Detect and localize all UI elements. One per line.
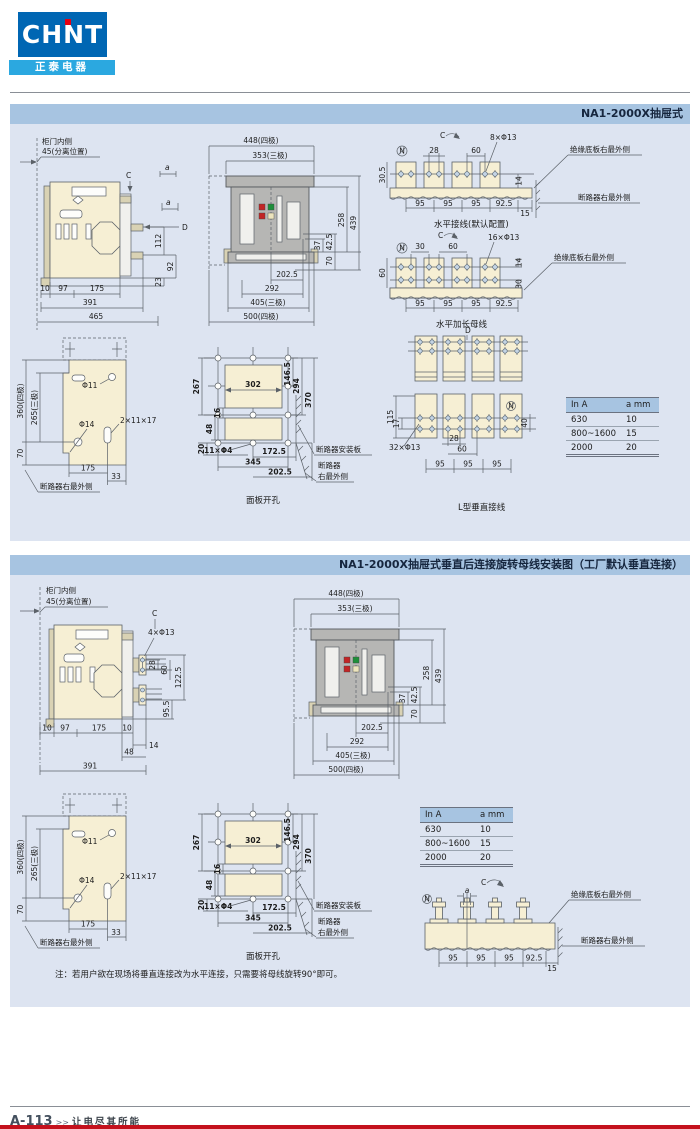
drawing-shape	[311, 629, 399, 640]
drawing-shape	[399, 265, 404, 270]
dim-label: 10	[40, 284, 50, 293]
drawing-shape	[215, 383, 221, 389]
drawing-shape	[225, 418, 282, 440]
drawing-shape	[128, 186, 133, 192]
drawing-shape	[76, 667, 81, 682]
dim-label: C	[481, 878, 486, 887]
drawing-shape	[487, 427, 491, 431]
drawing-shape	[427, 172, 432, 177]
drawing-shape	[344, 666, 350, 672]
drawing-shape	[141, 658, 145, 662]
dim-label: Φ14	[79, 876, 95, 885]
drawing-shape	[458, 416, 462, 420]
panel-na1-2000x-drawer: NA1-2000X抽屉式 柜门内侧 45(分离位置) a C a	[10, 104, 690, 541]
dim-label: 45(分离位置)	[42, 146, 87, 156]
callout-breaker-edge: 断路器右最外侧	[40, 937, 93, 947]
drawing-shape	[418, 416, 422, 420]
spec-cell: 630	[566, 413, 621, 427]
drawing-shape	[285, 896, 291, 902]
drawing-shape	[465, 265, 470, 270]
dim-label: 391	[83, 762, 98, 771]
dim-label: a	[166, 198, 171, 207]
dim-label: 28	[449, 434, 459, 443]
dim-label: a	[165, 163, 170, 172]
dim-label: 265(三极)	[29, 390, 39, 425]
drawing-shape	[558, 927, 563, 965]
dim-label: 95	[415, 199, 425, 208]
drawing-shape	[250, 868, 256, 874]
spec-row: 800~160015	[566, 427, 659, 441]
drawing-shape	[430, 416, 434, 420]
dim-label: 258	[422, 666, 431, 681]
dim-label: 202.5	[361, 723, 383, 732]
drawing-shape	[268, 213, 274, 219]
drawing-shape	[483, 278, 488, 283]
drawing-shape	[41, 278, 120, 298]
dim-label: 146.5	[283, 818, 292, 842]
dim-label: 60	[471, 146, 481, 155]
spec-cell: 15	[621, 427, 659, 441]
dim-label: Φ11	[82, 381, 98, 390]
drawing-shape	[437, 265, 442, 270]
drawing-shape	[294, 629, 311, 723]
drawing-shape	[131, 252, 143, 259]
dim-label: 302	[245, 380, 261, 389]
dim-label: 258	[337, 213, 346, 228]
dim-label: 265(三极)	[29, 846, 39, 881]
dim-label: 15	[547, 964, 557, 973]
spec-cell: 20	[475, 851, 513, 866]
drawing-shape	[131, 224, 143, 231]
callout-insulation-edge: 绝缘底板右最外侧	[570, 144, 630, 154]
drawing-shape	[209, 176, 226, 270]
dim-label: 294	[292, 378, 301, 394]
spec-row: 800~160015	[420, 837, 513, 851]
dim-label: 95	[415, 299, 425, 308]
spec-cell: 20	[621, 441, 659, 456]
drawing-shape	[446, 427, 450, 431]
drawing-shape	[446, 340, 450, 344]
caption-panel-cutout: 面板开孔	[246, 495, 281, 506]
drawing-shape	[437, 278, 442, 283]
drawing-shape	[503, 349, 507, 353]
dim-label: 28	[148, 660, 157, 670]
dim-label: 95	[504, 954, 514, 963]
dim-label: 353(三极)	[252, 150, 287, 160]
drawing-shape	[109, 374, 116, 381]
dim-label: 17	[392, 419, 401, 429]
drawing-shape	[515, 416, 519, 420]
drawing-shape	[296, 899, 309, 935]
drawing-shape	[145, 638, 155, 656]
dim-label: 60	[448, 242, 458, 251]
spec-row: 200020	[420, 851, 513, 866]
dim-label: 405(三极)	[335, 750, 370, 760]
drawing-shape	[514, 919, 532, 923]
dim-label: 202.5	[276, 270, 298, 279]
dim-label: 16×Φ13	[488, 233, 520, 242]
callout-breaker-edge: 断路器右最外侧	[581, 935, 634, 945]
footer-red-bar	[0, 1125, 700, 1129]
drawing-shape	[492, 907, 499, 919]
callout-breaker-edge: 右最外侧	[318, 471, 348, 481]
callout-breaker-edge: 右最外侧	[318, 927, 348, 937]
drawing-shape	[406, 200, 532, 212]
dim-label: 48	[205, 880, 214, 890]
drawing-shape	[455, 278, 460, 283]
drawing-shape	[393, 396, 415, 438]
brand-name: 正泰电器	[9, 60, 115, 75]
drawing-shape	[65, 342, 122, 357]
drawing-shape	[226, 176, 314, 187]
dim-label: 37	[313, 241, 322, 251]
drawing-shape	[487, 416, 491, 420]
dim-label: 23	[154, 277, 163, 287]
caption-panel-cutout: 面板开孔	[246, 951, 281, 962]
drawing-shape	[287, 202, 300, 239]
drawing-shape	[409, 278, 414, 283]
dim-label: 30	[415, 242, 425, 251]
drawing-shape	[480, 258, 500, 288]
drawing-shape	[475, 340, 479, 344]
drawing-shape	[458, 427, 462, 431]
dim-label: 360(四极)	[15, 383, 25, 418]
dim-label: 353(三极)	[337, 603, 372, 613]
drawing-shape	[503, 416, 507, 420]
drawing-shape	[31, 160, 37, 165]
drawing-shape	[424, 258, 444, 288]
drawing-shape	[215, 839, 221, 845]
panel1-title: NA1-2000X抽屉式	[10, 104, 690, 124]
dim-label: 37	[398, 694, 407, 704]
drawing-shape	[489, 902, 502, 907]
dim-label: C	[152, 609, 157, 618]
drawing-mounting-plate-1: Φ11 Φ14 2×11×17 360(四极) 70 265(三极) 175 3…	[12, 333, 192, 503]
dim-label: 292	[350, 737, 365, 746]
drawing-shape	[446, 349, 450, 353]
panel-na1-2000x-vertical: NA1-2000X抽屉式垂直后连接旋转母线安装图（工厂默认垂直连接） 柜门内侧 …	[10, 555, 690, 1007]
drawing-shape	[399, 172, 404, 177]
drawing-shape	[133, 688, 139, 702]
drawing-shape	[443, 394, 465, 438]
drawing-shape	[515, 349, 519, 353]
drawing-shape	[418, 340, 422, 344]
dim-label: 42.5	[410, 686, 419, 703]
drawing-shape	[250, 412, 256, 418]
dim-label: 405(三极)	[250, 297, 285, 307]
spec-row: 200020	[566, 441, 659, 456]
drawing-side-view-1: 柜门内侧 45(分离位置) a C a D 112	[12, 132, 197, 337]
dim-label: 370	[304, 392, 313, 408]
callout-breaker-edge: 断路器	[318, 460, 341, 470]
drawing-shape	[427, 278, 432, 283]
drawing-shape	[493, 898, 498, 902]
drawing-shape	[225, 874, 282, 896]
drawing-shape	[56, 224, 61, 239]
dim-label: 95	[476, 954, 486, 963]
drawing-shape	[122, 631, 133, 717]
spec-row: 63010	[420, 823, 513, 837]
drawing-shape	[86, 224, 91, 239]
drawing-shape	[465, 172, 470, 177]
spec-cell: 630	[420, 823, 475, 837]
dim-label: 175	[81, 464, 96, 473]
dim-label: 4×Φ13	[148, 628, 175, 637]
drawing-shape	[120, 194, 131, 276]
dim-label: 柜门内侧	[42, 136, 72, 146]
drawing-shape	[311, 614, 399, 627]
dim-label: 70	[16, 905, 25, 915]
dim-label: 42.5	[325, 233, 334, 250]
drawing-shape	[64, 224, 69, 239]
drawing-shape	[344, 657, 350, 663]
drawing-shape	[141, 668, 145, 672]
drawing-shape	[458, 349, 462, 353]
drawing-shape	[497, 880, 504, 887]
drawing-shape	[483, 265, 488, 270]
spec-cell: 800~1600	[566, 427, 621, 441]
drawing-shape	[475, 427, 479, 431]
dim-label: 448(四极)	[243, 135, 278, 145]
drawing-shape	[296, 851, 301, 899]
dim-label: 70	[410, 709, 419, 719]
spec-cell: 2000	[420, 851, 475, 866]
dim-label: 175	[90, 284, 105, 293]
drawing-shape	[409, 172, 414, 177]
drawing-shape	[409, 265, 414, 270]
drawing-panel-cutout-2: 302 267 16 48 20 146.5 294 370 11×Φ4 172…	[190, 789, 375, 979]
dim-label: 294	[292, 834, 301, 850]
drawing-shape	[515, 340, 519, 344]
dim-label: 95	[448, 954, 458, 963]
dim-label: 70	[16, 449, 25, 459]
drawing-shape	[44, 186, 50, 278]
drawing-shape	[109, 830, 116, 837]
drawing-shape	[40, 607, 108, 612]
drawing-shape	[285, 440, 291, 446]
dim-label: 439	[349, 216, 358, 231]
dim-label: 30.5	[378, 166, 387, 183]
drawing-shape	[396, 258, 416, 288]
dim-label: 345	[245, 458, 261, 467]
drawing-shape	[433, 902, 446, 907]
drawing-shape	[437, 172, 442, 177]
drawing-shape	[465, 278, 470, 283]
drawing-shape	[372, 655, 385, 692]
drawing-shape	[353, 666, 359, 672]
dim-label: 60	[160, 665, 169, 675]
drawing-shape	[68, 667, 73, 682]
dim-label: 95	[443, 199, 453, 208]
dim-label: C	[126, 171, 131, 180]
drawing-shape	[250, 811, 256, 817]
dim-label: 500(四极)	[243, 311, 278, 321]
callout-breaker-edge: 断路器右最外侧	[578, 192, 631, 202]
spec-col-header: In A	[566, 398, 621, 413]
drawing-front-view-2: 448(四极) 353(三极) 258 439 42.5 37 70 202.5…	[280, 583, 455, 795]
dim-label: 10	[42, 724, 52, 733]
drawing-shape	[452, 258, 472, 288]
drawing-shape	[250, 440, 256, 446]
drawing-shape	[296, 443, 309, 479]
drawing-shape	[37, 157, 100, 162]
dim-label: 15	[520, 209, 530, 218]
drawing-shape	[520, 907, 527, 919]
dim-label: 267	[192, 835, 201, 851]
drawing-shape	[325, 647, 339, 697]
dim-label: 14	[149, 741, 159, 750]
drawing-shape	[34, 609, 40, 614]
callout-insulation-edge: 绝缘底板右最外侧	[571, 889, 631, 899]
drawing-shape	[458, 340, 462, 344]
dim-label: 97	[58, 284, 68, 293]
drawing-shape	[104, 427, 111, 443]
drawing-shape	[430, 349, 434, 353]
spec-col-header: a mm	[475, 808, 513, 823]
spec-row: 63010	[566, 413, 659, 427]
caption-ltype: L型垂直接线	[458, 502, 506, 513]
dim-label: 360(四极)	[15, 839, 25, 874]
dim-label: 16	[213, 408, 222, 418]
drawing-shape	[92, 222, 120, 254]
drawing-shape	[60, 667, 65, 682]
chint-logo: CHNT	[18, 12, 107, 57]
drawing-extended-busbar: N C 30 60 16×Φ13 14 60 30 95 95 95 92.5 …	[382, 230, 688, 332]
panel2-title: NA1-2000X抽屉式垂直后连接旋转母线安装图（工厂默认垂直连接）	[10, 555, 690, 575]
dim-label: 45(分离位置)	[46, 596, 91, 606]
spec-col-header: a mm	[621, 398, 659, 413]
logo-red-dot-icon	[65, 19, 71, 25]
dim-label: 2×11×17	[120, 416, 157, 425]
dim-label: 175	[81, 920, 96, 929]
drawing-shape	[534, 155, 642, 188]
dim-label: 2×11×17	[120, 872, 157, 881]
drawing-shape	[104, 883, 111, 899]
dim-label: 345	[245, 914, 261, 923]
spec-cell: 800~1600	[420, 837, 475, 851]
current-spec-table: In A a mm 63010 800~160015 200020	[566, 397, 659, 457]
dim-label: 172.5	[262, 903, 286, 912]
dim-label: 92	[166, 262, 175, 272]
dim-label: 95.5	[162, 700, 171, 717]
drawing-mounting-plate-2: Φ11 Φ14 2×11×17 360(四极) 70 265(三极) 175 3…	[12, 789, 192, 959]
dim-label: 8×Φ13	[490, 133, 517, 142]
drawing-shape	[141, 688, 145, 692]
drawing-shape	[72, 224, 77, 239]
dim-label: 92.5	[496, 199, 513, 208]
drawing-horizontal-connection: N C 28 60 8×Φ13 30.5 14 95 95 95 92.5 15…	[382, 128, 688, 235]
dim-label: 292	[265, 284, 280, 293]
dim-label: 202.5	[268, 468, 292, 477]
dim-label: 146.5	[283, 362, 292, 386]
drawing-shape	[487, 349, 491, 353]
dim-label: 10	[122, 724, 132, 733]
dim-label: 97	[60, 724, 70, 733]
drawing-shape	[430, 919, 448, 923]
spec-cell: 2000	[566, 441, 621, 456]
drawing-side-view-2: 柜门内侧 45(分离位置) C 4×Φ13	[12, 581, 267, 781]
drawing-front-view-1: 448(四极) 353(三极) 258 439 42.5 37 70 202.5…	[195, 130, 370, 342]
dim-label: Φ11	[82, 837, 98, 846]
drawing-shape	[120, 196, 131, 203]
dim-label: D	[182, 223, 188, 232]
callout-insulation-edge: 绝缘底板右最外侧	[554, 252, 614, 262]
dim-label: 14	[515, 258, 524, 268]
drawing-shape	[515, 427, 519, 431]
dim-label: 16	[213, 864, 222, 874]
drawing-shape	[430, 427, 434, 431]
dim-label: 95	[471, 199, 481, 208]
dim-label: 40	[520, 418, 529, 428]
dim-label: 112	[154, 234, 163, 249]
drawing-shape	[76, 630, 108, 639]
dim-label: 95	[471, 299, 481, 308]
drawing-shape	[215, 811, 221, 817]
drawing-shape	[230, 900, 251, 906]
callout-breaker-edge: 断路器右最外侧	[40, 481, 93, 491]
dim-label: 391	[83, 298, 98, 307]
drawing-shape	[226, 161, 314, 174]
drawing-shape	[483, 172, 488, 177]
drawing-shape	[230, 444, 251, 450]
callout-breaker-edge: 断路器	[318, 916, 341, 926]
drawing-shape	[475, 349, 479, 353]
dim-label: 48	[124, 748, 134, 757]
drawing-shape	[259, 204, 265, 210]
drawing-shape	[250, 355, 256, 361]
dim-label: Φ14	[79, 420, 95, 429]
drawing-shape	[503, 340, 507, 344]
dim-label: D	[465, 326, 471, 335]
drawing-panel-cutout-1: 302 267 16 48 20 146.5 294 370 11×Φ4 172…	[190, 333, 375, 523]
dim-label: 95	[492, 460, 502, 469]
callout-mounting-plate: 断路器安装板	[316, 444, 361, 454]
drawing-shape	[268, 204, 274, 210]
logo-text: CHNT	[18, 12, 107, 57]
dim-label: 48	[205, 424, 214, 434]
dim-label: 500(四极)	[328, 764, 363, 774]
dim-label: 465	[89, 312, 104, 321]
drawing-shape	[277, 196, 282, 242]
dim-label: 95	[463, 460, 473, 469]
dim-label: 60	[378, 268, 387, 278]
drawing-shape	[64, 654, 84, 662]
field-change-note: 注：若用户欲在现场将垂直连接改为水平连接，只需要将母线旋转90°即可。	[55, 968, 342, 980]
drawing-shape	[418, 427, 422, 431]
dim-label: 70	[325, 256, 334, 266]
dim-label: 439	[434, 669, 443, 684]
drawing-shape	[141, 698, 145, 702]
drawing-shape	[60, 210, 82, 218]
drawing-shape	[493, 278, 498, 283]
dim-label: 267	[192, 379, 201, 395]
drawing-shape	[65, 798, 122, 813]
drawing-shape	[486, 919, 504, 923]
drawing-shape	[437, 898, 442, 902]
drawing-shape	[472, 394, 494, 438]
footer-divider	[10, 1106, 690, 1107]
current-spec-table: In A a mm 63010 800~160015 200020	[420, 807, 513, 867]
dim-label: C	[440, 131, 445, 140]
dim-label: 95	[443, 299, 453, 308]
drawing-shape	[493, 172, 498, 177]
caption-horizontal: 水平接线(默认配置)	[434, 219, 509, 230]
drawing-shape	[524, 263, 626, 290]
drawing-shape	[427, 265, 432, 270]
drawing-shape	[455, 265, 460, 270]
drawing-shape	[146, 689, 162, 699]
drawing-shape	[493, 265, 498, 270]
